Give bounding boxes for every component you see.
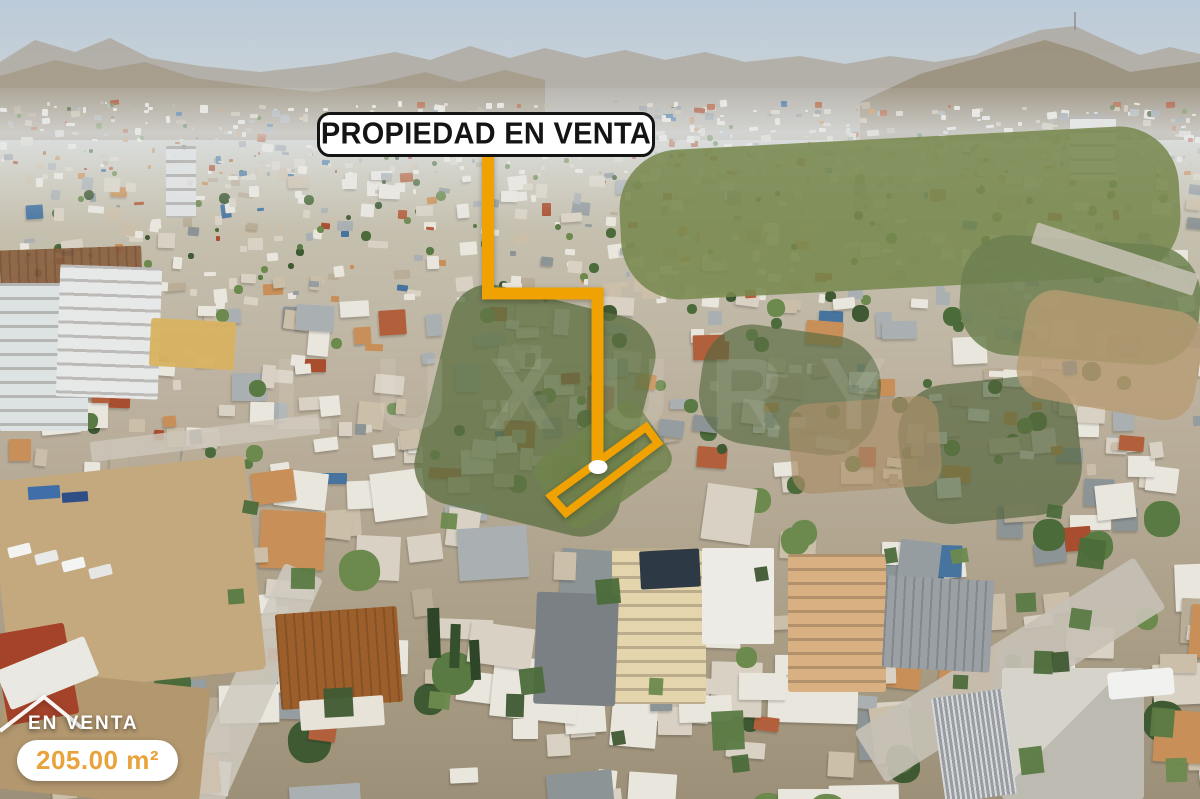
photo-tree: [950, 547, 969, 564]
watermark: LUXURY: [140, 336, 1060, 453]
photo-tree: [323, 687, 353, 718]
photo-tree: [428, 691, 451, 711]
photo-tree: [648, 677, 663, 695]
photo-tree: [611, 730, 626, 746]
photo-tree: [884, 548, 898, 564]
photo-tree: [711, 711, 745, 751]
photo-tree: [731, 754, 750, 773]
photo-tree: [754, 566, 769, 582]
photo-tree: [1150, 707, 1175, 738]
property-for-sale-label: PROPIEDAD EN VENTA: [317, 112, 655, 157]
cypress-tree: [449, 624, 461, 668]
photo-tree: [1015, 592, 1036, 612]
photo-tree: [1018, 746, 1044, 776]
photo-tree: [1052, 651, 1071, 672]
photo-tree: [519, 667, 546, 696]
property-for-sale-label-text: PROPIEDAD EN VENTA: [321, 117, 651, 151]
photo-tree: [228, 589, 245, 605]
photo-tree: [291, 568, 316, 589]
status-badge: EN VENTA: [28, 713, 139, 735]
photo-tree: [1077, 537, 1108, 569]
photo-tree: [242, 499, 259, 515]
photo-tree: [1166, 757, 1188, 781]
photo-tree: [1069, 607, 1092, 630]
photo-tree: [440, 512, 457, 530]
photo-tree: [953, 674, 969, 689]
aerial-photo: LUXURY PROPIEDAD EN VENTA EN VENTA 205.0…: [0, 0, 1200, 799]
photo-tree: [595, 578, 621, 605]
photo-tree: [1047, 504, 1063, 519]
area-badge: 205.00 m²: [17, 740, 178, 781]
cypress-tree: [427, 608, 441, 658]
area-badge-text: 205.00 m²: [36, 745, 159, 776]
photo-tree: [506, 693, 525, 717]
cypress-tree: [469, 640, 481, 680]
